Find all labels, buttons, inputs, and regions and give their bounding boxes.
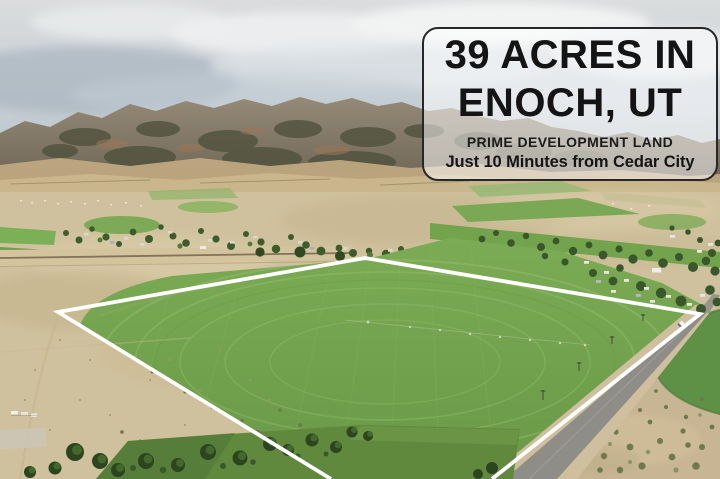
banner-title-line2: ENOCH, UT (458, 80, 683, 127)
banner-subtitle: PRIME DEVELOPMENT LAND (467, 134, 673, 150)
banner-title-line1: 39 ACRES IN (445, 32, 696, 79)
listing-banner: 39 ACRES IN ENOCH, UT PRIME DEVELOPMENT … (422, 27, 718, 181)
listing-photo: 39 ACRES IN ENOCH, UT PRIME DEVELOPMENT … (0, 0, 720, 479)
banner-tagline: Just 10 Minutes from Cedar City (445, 153, 694, 172)
